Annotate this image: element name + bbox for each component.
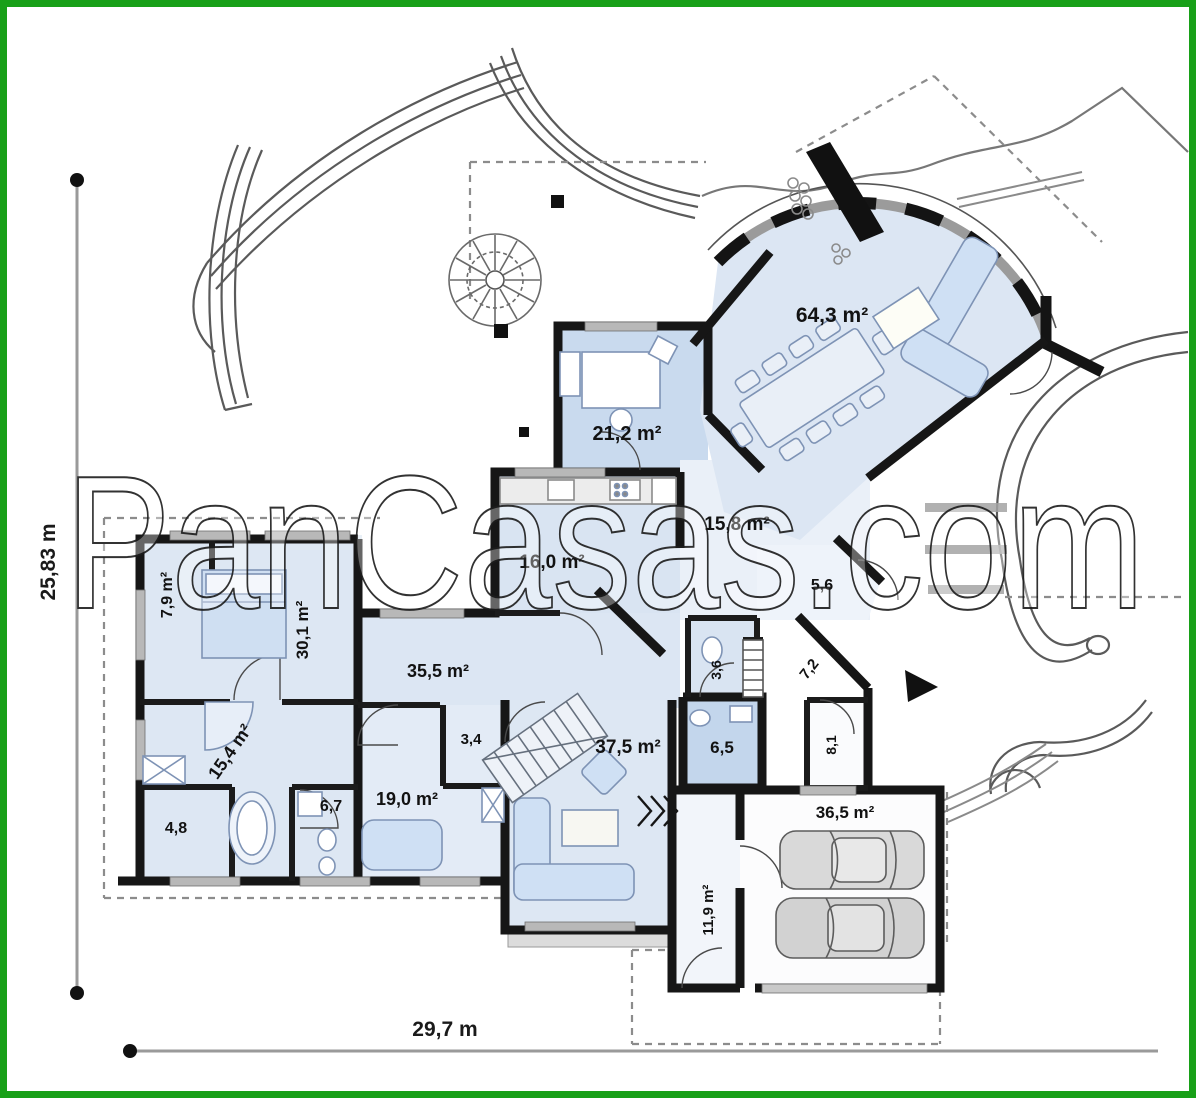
room-label-bathroom-guest: 6,5: [710, 738, 734, 757]
chaise: [362, 820, 442, 870]
room-label-corridor: 35,5 m²: [407, 661, 469, 681]
floor-plan-page: 25,83 m 29,7 m: [0, 0, 1196, 1098]
room-label-living-dining: 64,3 m²: [796, 304, 868, 327]
room-label-family-room: 37,5 m²: [595, 737, 660, 758]
dimension-height-label: 25,83 m: [37, 523, 60, 600]
room-label-wc: 3,6: [708, 660, 724, 680]
floor-plan-svg: 25,83 m 29,7 m: [7, 7, 1189, 1091]
room-label-boiler-room: 11,9 m²: [700, 885, 717, 936]
room-label-bedroom-second: 19,0 m²: [376, 789, 438, 809]
room-label-hallway: 7,2: [796, 656, 822, 683]
garage-car-1: [780, 831, 924, 889]
room-label-wardrobe: 3,4: [461, 731, 483, 748]
room-label-storage: 4,8: [165, 820, 187, 837]
railing-lines: [957, 172, 1084, 207]
bathtub: [229, 792, 275, 864]
room-label-garage: 36,5 m²: [816, 803, 875, 822]
room-label-bathroom-small: 6,7: [320, 798, 342, 815]
landscape-wavy-line: [702, 88, 1188, 196]
north-arrow: [905, 670, 938, 702]
spiral-staircase: [449, 234, 541, 326]
room-label-pantry: 8,1: [823, 735, 839, 755]
watermark-text: PanCasas.com: [65, 437, 1145, 649]
garage-car-2: [776, 898, 924, 958]
dimension-width-label: 29,7 m: [412, 1018, 477, 1041]
